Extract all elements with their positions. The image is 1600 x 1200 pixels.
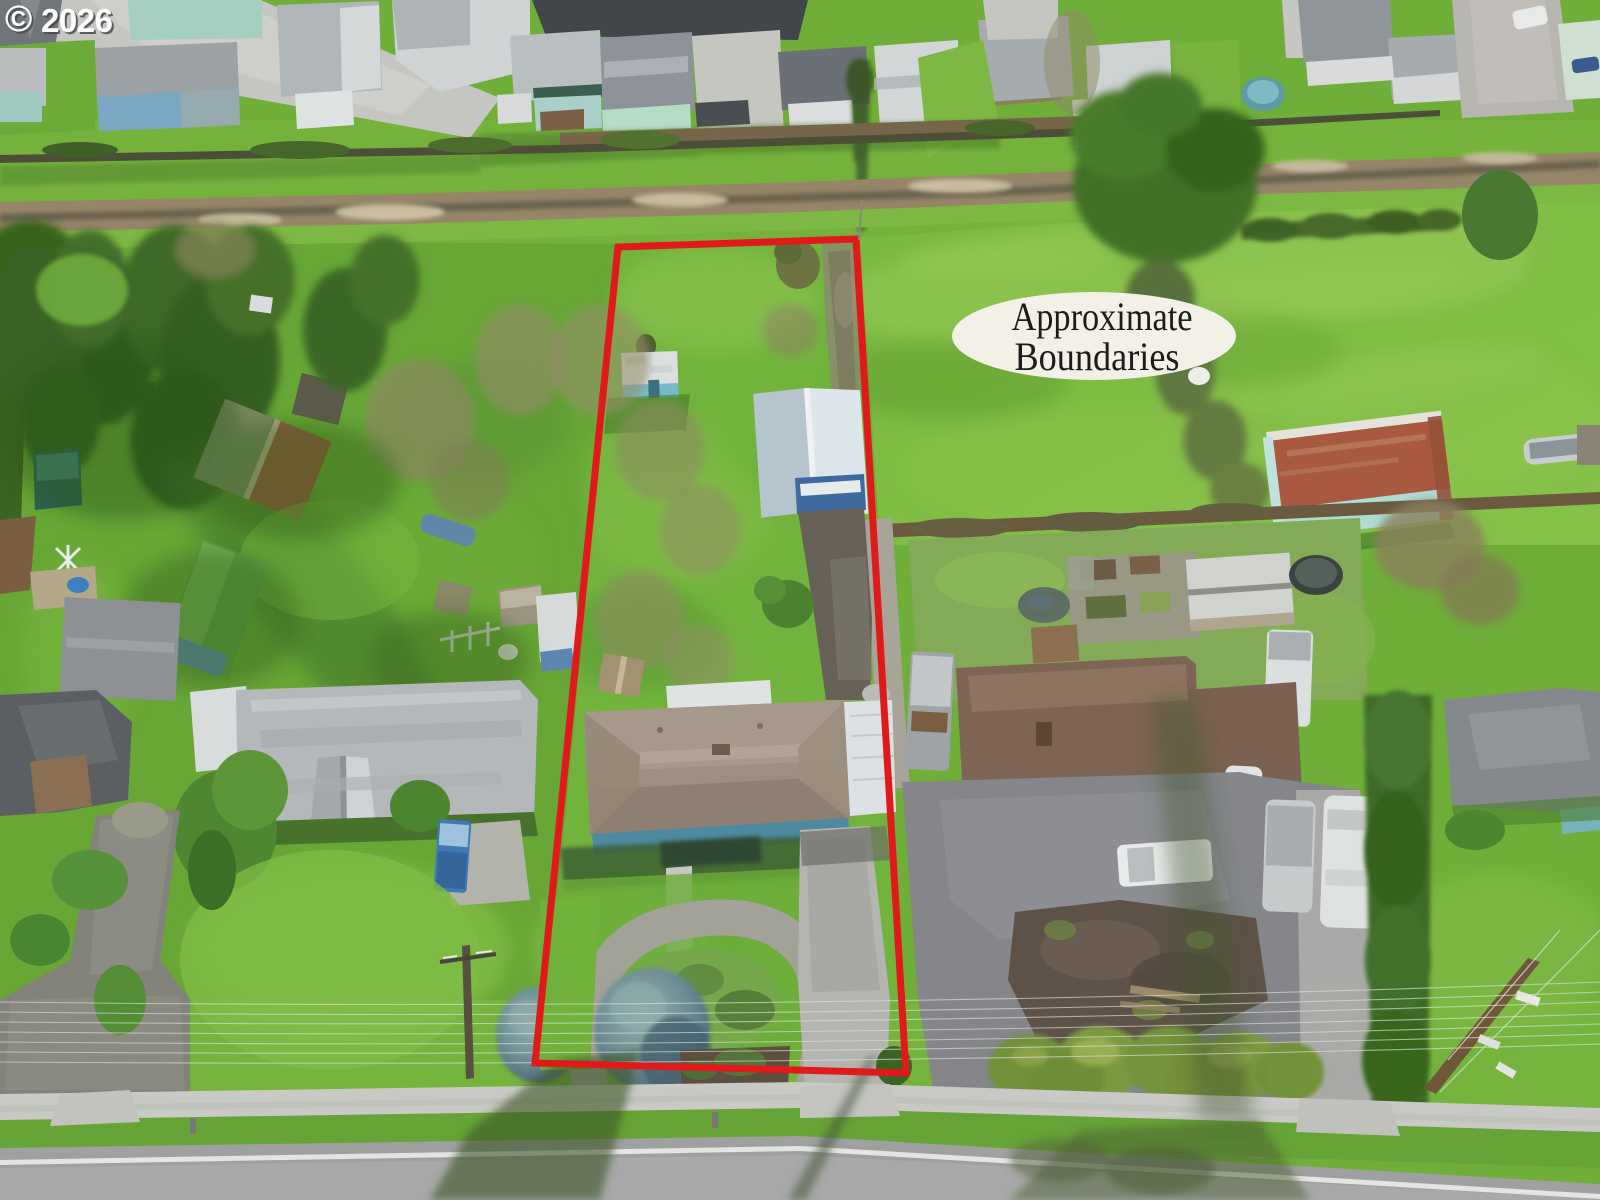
svg-text:Boundaries: Boundaries [1015,334,1180,379]
svg-text:Approximate: Approximate [1012,294,1193,339]
svg-text:2026: 2026 [41,2,113,39]
svg-text:©: © [5,0,32,39]
